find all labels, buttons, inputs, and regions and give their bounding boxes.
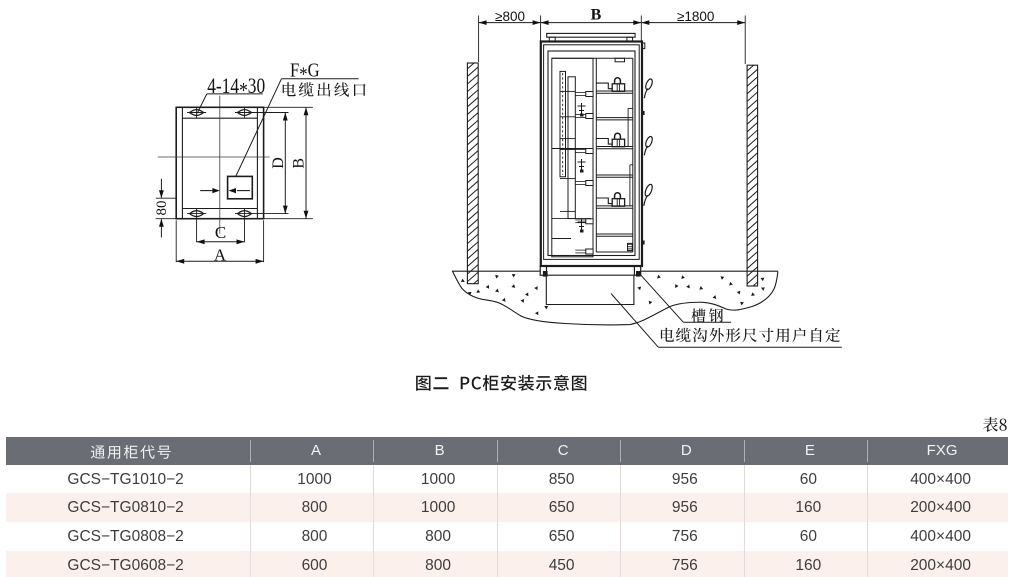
svg-text:C: C (215, 223, 226, 242)
svg-text:B: B (290, 158, 307, 169)
svg-text:≥1800: ≥1800 (677, 9, 714, 24)
svg-text:A: A (214, 246, 227, 265)
svg-text:≥800: ≥800 (495, 9, 525, 24)
svg-text:F*G: F*G (290, 59, 320, 85)
svg-text:D: D (270, 157, 287, 169)
svg-text:4-14*30: 4-14*30 (207, 73, 265, 103)
svg-text:80: 80 (154, 201, 170, 216)
svg-text:B: B (591, 7, 602, 24)
